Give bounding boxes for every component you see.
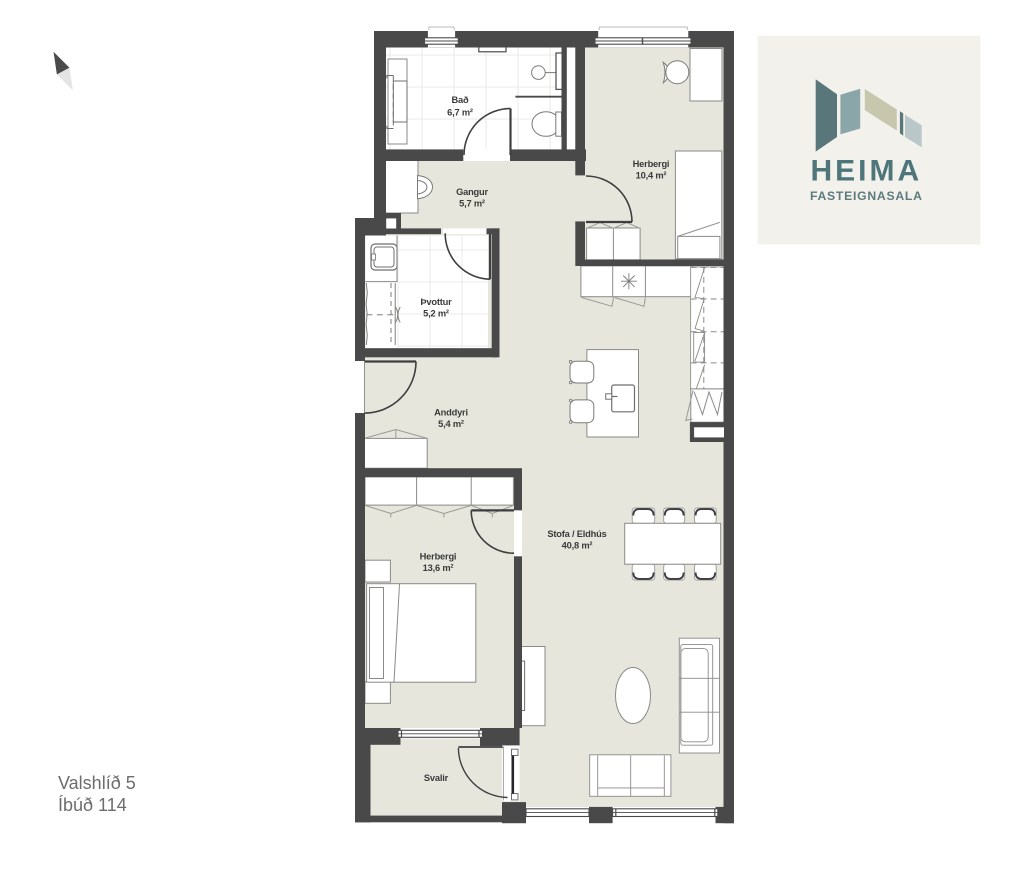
svg-text:Anddyri: Anddyri [434,408,468,418]
svg-text:6,7 m²: 6,7 m² [447,108,473,118]
svg-text:Valshlíð 5: Valshlíð 5 [58,773,136,793]
svg-text:Herbergi: Herbergi [420,552,457,562]
svg-text:40,8 m²: 40,8 m² [562,541,593,551]
svg-text:FASTEIGNASALA: FASTEIGNASALA [810,189,923,203]
svg-text:Bað: Bað [452,95,469,105]
svg-text:5,4 m²: 5,4 m² [438,419,464,429]
svg-text:5,7 m²: 5,7 m² [459,199,485,209]
svg-text:Herbergi: Herbergi [633,159,670,169]
svg-text:Gangur: Gangur [456,187,488,197]
svg-text:10,4 m²: 10,4 m² [636,171,667,181]
svg-text:5,2 m²: 5,2 m² [423,309,449,319]
svg-text:Svalir: Svalir [424,773,449,783]
svg-text:Íbúð 114: Íbúð 114 [58,795,127,815]
svg-text:13,6 m²: 13,6 m² [423,563,454,573]
svg-text:Stofa / Eldhús: Stofa / Eldhús [547,529,606,539]
svg-text:Þvottur: Þvottur [420,297,452,307]
svg-text:HEIMA: HEIMA [810,155,922,188]
